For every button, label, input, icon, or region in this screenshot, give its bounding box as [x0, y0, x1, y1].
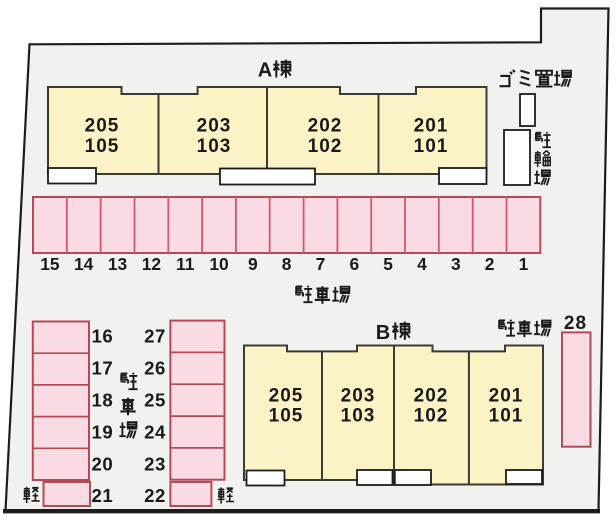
svg-text:202: 202 [414, 386, 449, 407]
svg-text:105: 105 [269, 406, 304, 427]
svg-text:101: 101 [414, 136, 449, 157]
svg-text:27: 27 [144, 325, 166, 346]
svg-text:14: 14 [74, 254, 94, 274]
svg-text:11: 11 [176, 254, 195, 274]
svg-text:28: 28 [564, 313, 587, 334]
svg-text:22: 22 [144, 485, 166, 506]
svg-text:12: 12 [142, 254, 161, 274]
svg-text:201: 201 [414, 116, 449, 137]
svg-text:5: 5 [383, 254, 393, 274]
svg-text:10: 10 [209, 254, 228, 274]
svg-text:205: 205 [269, 386, 304, 407]
svg-text:23: 23 [144, 453, 166, 474]
svg-text:19: 19 [92, 421, 114, 442]
svg-text:16: 16 [92, 325, 114, 346]
svg-text:18: 18 [92, 389, 114, 410]
svg-text:A: A [258, 60, 272, 82]
svg-text:8: 8 [282, 254, 292, 274]
svg-text:21: 21 [92, 485, 114, 506]
svg-text:101: 101 [489, 406, 524, 427]
svg-text:13: 13 [108, 254, 128, 274]
svg-text:7: 7 [316, 254, 326, 274]
svg-text:203: 203 [197, 116, 232, 137]
svg-text:4: 4 [417, 254, 427, 274]
svg-text:102: 102 [414, 406, 449, 427]
svg-text:205: 205 [85, 116, 120, 137]
svg-text:24: 24 [144, 421, 166, 442]
svg-text:15: 15 [40, 254, 60, 274]
svg-text:9: 9 [248, 254, 258, 274]
svg-text:26: 26 [144, 357, 166, 378]
svg-text:103: 103 [197, 136, 232, 157]
svg-text:25: 25 [144, 389, 166, 410]
svg-text:202: 202 [308, 116, 343, 137]
svg-text:1: 1 [519, 254, 529, 274]
svg-text:201: 201 [489, 386, 524, 407]
svg-text:17: 17 [92, 357, 114, 378]
svg-text:203: 203 [341, 386, 376, 407]
svg-text:3: 3 [451, 254, 461, 274]
svg-text:6: 6 [349, 254, 359, 274]
svg-text:2: 2 [485, 254, 495, 274]
svg-text:20: 20 [92, 453, 114, 474]
svg-text:105: 105 [85, 136, 120, 157]
svg-text:102: 102 [308, 136, 343, 157]
svg-text:103: 103 [341, 406, 376, 427]
svg-text:B: B [376, 322, 390, 344]
